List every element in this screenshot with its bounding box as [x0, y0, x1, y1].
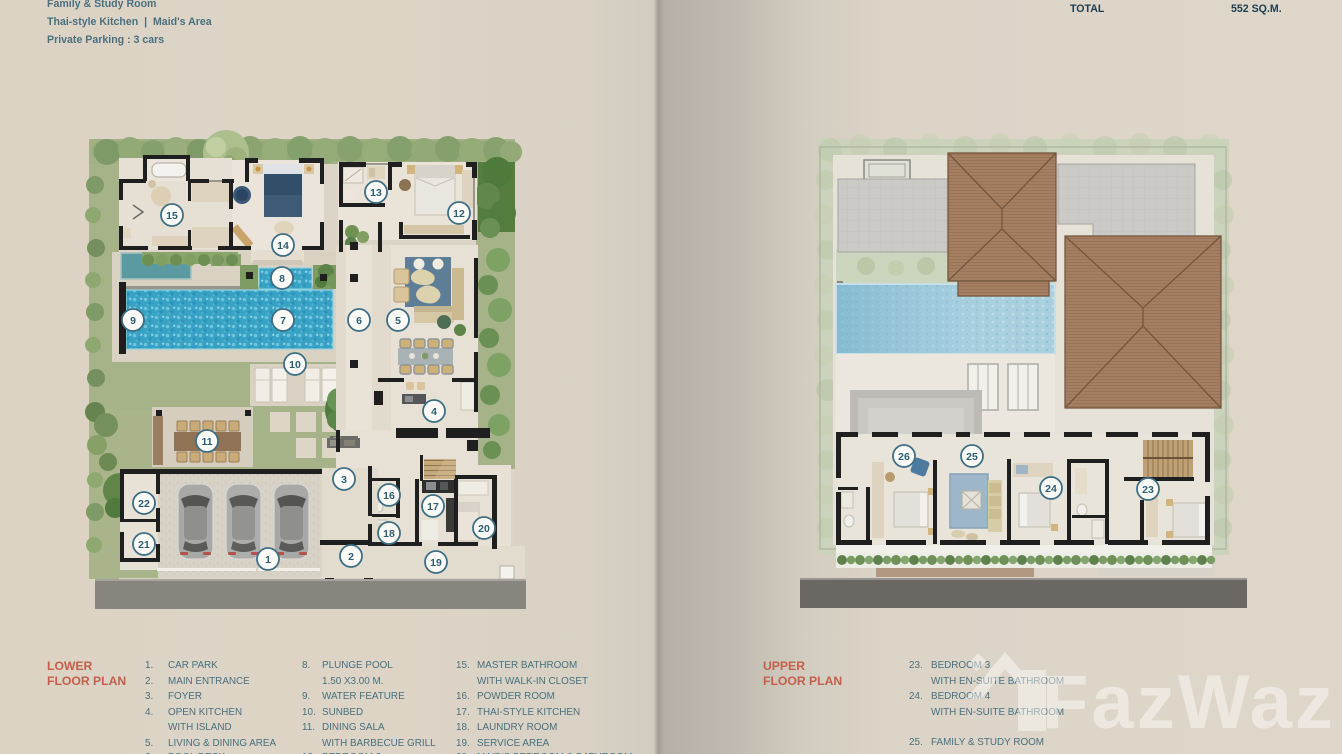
svg-text:SERVICE AREA: SERVICE AREA	[477, 738, 550, 749]
svg-text:20: 20	[478, 523, 490, 535]
svg-text:19.: 19.	[456, 738, 470, 749]
svg-text:WITH BARBECUE GRILL: WITH BARBECUE GRILL	[322, 738, 436, 749]
svg-text:THAI-STYLE KITCHEN: THAI-STYLE KITCHEN	[477, 707, 580, 718]
svg-text:LOWER: LOWER	[47, 659, 93, 673]
svg-text:23: 23	[1142, 484, 1154, 496]
svg-text:FLOOR PLAN: FLOOR PLAN	[763, 674, 842, 688]
svg-text:FOYER: FOYER	[168, 691, 202, 702]
svg-text:FAMILY & STUDY ROOM: FAMILY & STUDY ROOM	[931, 737, 1044, 748]
svg-text:WITH ISLAND: WITH ISLAND	[168, 722, 232, 733]
svg-text:Family & Study Room: Family & Study Room	[47, 0, 156, 10]
svg-text:SUNBED: SUNBED	[322, 707, 363, 718]
svg-text:10: 10	[289, 359, 301, 371]
svg-text:17: 17	[427, 501, 439, 513]
svg-text:15.: 15.	[456, 660, 470, 671]
svg-text:13: 13	[370, 187, 382, 199]
svg-text:5.: 5.	[145, 738, 153, 749]
svg-text:POWDER ROOM: POWDER ROOM	[477, 691, 555, 702]
svg-text:9: 9	[130, 315, 136, 327]
svg-text:18.: 18.	[456, 722, 470, 733]
svg-text:LAUNDRY ROOM: LAUNDRY ROOM	[477, 722, 557, 733]
svg-text:24.: 24.	[909, 691, 923, 702]
svg-text:22: 22	[138, 498, 150, 510]
svg-text:15: 15	[166, 210, 178, 222]
svg-text:9.: 9.	[302, 691, 310, 702]
svg-text:1.: 1.	[145, 660, 153, 671]
svg-text:2.: 2.	[145, 676, 153, 687]
svg-text:5: 5	[395, 315, 401, 327]
svg-text:552 SQ.M.: 552 SQ.M.	[1231, 3, 1282, 15]
svg-text:2: 2	[348, 551, 354, 563]
svg-text:16.: 16.	[456, 691, 470, 702]
svg-text:FLOOR PLAN: FLOOR PLAN	[47, 674, 126, 688]
svg-text:Thai-style Kitchen | Maid's: Thai-style Kitchen | Maid's Area	[47, 16, 212, 28]
svg-text:25.: 25.	[909, 737, 923, 748]
svg-text:11.: 11.	[302, 722, 315, 733]
svg-text:17.: 17.	[456, 707, 470, 718]
svg-text:TOTAL: TOTAL	[1070, 3, 1105, 15]
svg-text:3.: 3.	[145, 691, 153, 702]
svg-text:8.: 8.	[302, 660, 310, 671]
svg-text:18: 18	[383, 528, 395, 540]
svg-text:14: 14	[277, 240, 289, 252]
svg-text:10.: 10.	[302, 707, 316, 718]
svg-text:WITH WALK-IN CLOSET: WITH WALK-IN CLOSET	[477, 676, 588, 687]
svg-text:UPPER: UPPER	[763, 659, 805, 673]
svg-text:PLUNGE POOL: PLUNGE POOL	[322, 660, 393, 671]
svg-text:26: 26	[898, 451, 910, 463]
svg-text:12: 12	[453, 208, 465, 220]
svg-text:LIVING & DINING AREA: LIVING & DINING AREA	[168, 738, 277, 749]
svg-text:16: 16	[383, 490, 395, 502]
svg-text:4: 4	[431, 406, 437, 418]
svg-text:6: 6	[356, 315, 362, 327]
svg-text:11: 11	[201, 436, 212, 448]
svg-text:3: 3	[341, 474, 347, 486]
svg-text:1.50 X3.00 M.: 1.50 X3.00 M.	[322, 676, 383, 687]
svg-text:Private Parking : 3 cars: Private Parking : 3 cars	[47, 34, 164, 46]
svg-text:7: 7	[280, 315, 286, 327]
svg-text:MASTER BATHROOM: MASTER BATHROOM	[477, 660, 577, 671]
svg-text:23.: 23.	[909, 660, 923, 671]
svg-text:OPEN KITCHEN: OPEN KITCHEN	[168, 707, 242, 718]
svg-text:MAIN ENTRANCE: MAIN ENTRANCE	[168, 676, 250, 687]
svg-text:FazWaz: FazWaz	[1042, 660, 1336, 745]
svg-text:DINING SALA: DINING SALA	[322, 722, 385, 733]
svg-text:4.: 4.	[145, 707, 153, 718]
svg-text:CAR PARK: CAR PARK	[168, 660, 218, 671]
svg-text:1: 1	[265, 554, 271, 566]
svg-text:8: 8	[279, 273, 285, 285]
svg-text:WATER FEATURE: WATER FEATURE	[322, 691, 405, 702]
svg-text:24: 24	[1045, 483, 1057, 495]
svg-text:25: 25	[966, 451, 978, 463]
svg-text:19: 19	[430, 557, 442, 569]
svg-text:21: 21	[138, 539, 150, 551]
